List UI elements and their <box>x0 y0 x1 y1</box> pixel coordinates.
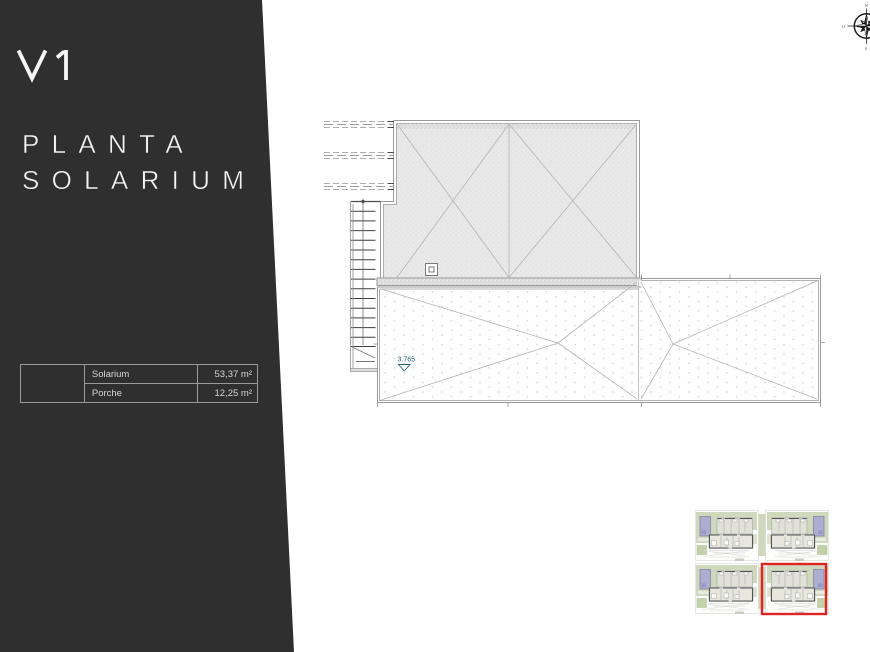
svg-text:3.765: 3.765 <box>398 357 416 364</box>
svg-text:O: O <box>842 24 845 29</box>
svg-text:S: S <box>865 46 868 51</box>
svg-text:N: N <box>865 3 869 8</box>
